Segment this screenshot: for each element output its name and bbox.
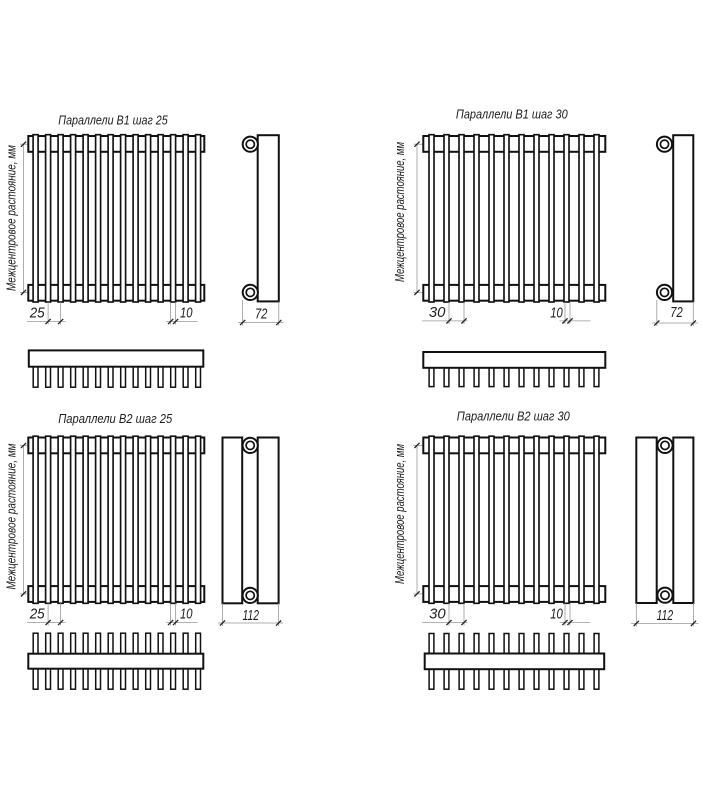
svg-text:10: 10 (550, 305, 563, 321)
svg-text:112: 112 (657, 608, 674, 624)
svg-text:Межцентровое растояние, мм: Межцентровое растояние, мм (392, 142, 407, 282)
svg-text:112: 112 (243, 608, 260, 624)
svg-text:72: 72 (670, 305, 683, 321)
svg-text:10: 10 (180, 606, 193, 622)
svg-text:Параллели В1 шаг 30: Параллели В1 шаг 30 (456, 108, 568, 122)
svg-text:Параллели В2 шаг 30: Параллели В2 шаг 30 (457, 410, 570, 424)
svg-text:30: 30 (429, 606, 446, 622)
svg-text:Межцентровое растояние, мм: Межцентровое растояние, мм (4, 443, 19, 589)
svg-text:30: 30 (429, 305, 446, 321)
svg-text:72: 72 (255, 307, 268, 323)
svg-text:10: 10 (180, 305, 193, 321)
svg-text:Межцентровое растояние, мм: Межцентровое растояние, мм (4, 145, 19, 291)
svg-text:Межцентровое растояние, мм: Межцентровое растояние, мм (392, 444, 407, 584)
svg-text:Параллели В1 шаг 25: Параллели В1 шаг 25 (58, 114, 167, 128)
svg-text:Параллели В2 шаг 25: Параллели В2 шаг 25 (58, 412, 172, 426)
svg-text:25: 25 (29, 606, 46, 622)
svg-text:25: 25 (29, 305, 46, 321)
svg-text:10: 10 (550, 606, 563, 622)
